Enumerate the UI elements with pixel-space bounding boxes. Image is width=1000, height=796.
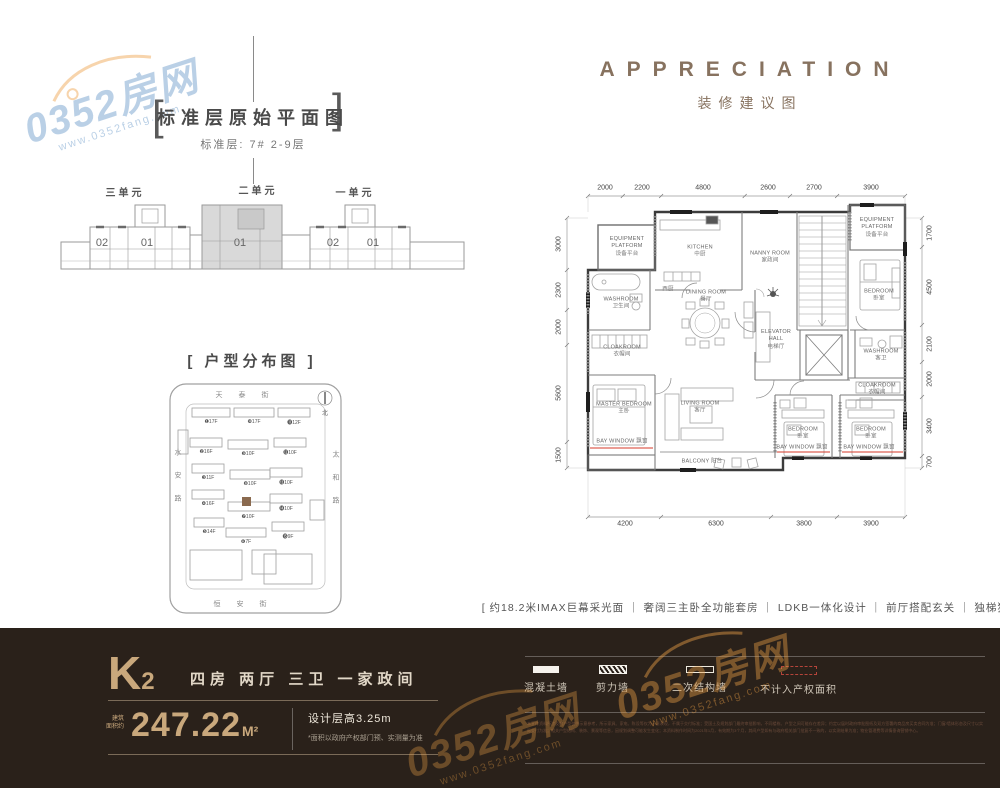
building-tag: ❽10F	[243, 481, 256, 487]
strip-room-02a: 02	[96, 237, 108, 249]
layout-text: 四房 两厅 三卫 一家政间	[190, 668, 418, 689]
disclaimer-text: 本宣传资料所涉及的户型仅供示意参考，所示家具、家电、陈设等仅为示意表现，不属于交…	[527, 720, 983, 734]
dim-top: 2000	[597, 185, 613, 192]
height-note: 设计层高3.25m	[308, 710, 392, 726]
building-tag: ⓭10F	[279, 479, 293, 486]
building-tag: ❶17F	[204, 419, 217, 425]
appreciation-title-en: APPRECIATION	[599, 58, 900, 82]
room-cloakroom-left: CLOAKROOM衣帽间	[603, 345, 641, 360]
unit-code: K2	[108, 650, 155, 696]
room-bedroom-3: BEDROOM卧室	[856, 427, 886, 442]
street-bottom: 恒安街	[214, 599, 283, 609]
building-tag: ⓫12F	[287, 419, 301, 426]
standard-floor-subtitle: 标准层: 7# 2-9层	[200, 136, 305, 152]
room-elevator-hall: ELEVATOR HALL电梯厅	[753, 329, 799, 351]
site-map	[168, 382, 343, 615]
dim-top: 2200	[634, 185, 650, 192]
concrete-wall-swatch	[533, 666, 559, 673]
dim-top: 2700	[806, 185, 822, 192]
dim-left: 1500	[556, 447, 563, 463]
building-tag: ❼10F	[241, 514, 254, 520]
room-master-bedroom: MASTER BEDROOM主卧	[596, 402, 652, 417]
building-tag: ❾10F	[241, 451, 254, 457]
dim-bottom: 3900	[863, 521, 879, 528]
room-bay-window-left: BAY WINDOW 飘窗	[596, 438, 647, 445]
car-swoosh-icon	[38, 34, 164, 109]
brochure-page: { "wm": { "brand": "0352房网", "site": "ww…	[0, 0, 1000, 788]
room-nanny: NANNY ROOM家政间	[750, 251, 790, 266]
room-washroom-left: WASHROOM卫生间	[603, 297, 638, 312]
dim-bottom: 6300	[708, 521, 724, 528]
room-cloakroom-right: CLOAKROOM衣帽间	[858, 383, 896, 398]
leader-line-top	[253, 36, 254, 102]
room-bay-window-r2: BAY WINDOW 飘窗	[843, 444, 894, 451]
unit-code-letter: K	[108, 647, 141, 699]
appreciation-title-cn: 装修建议图	[698, 93, 803, 113]
dim-left: 3000	[556, 236, 563, 252]
room-bedroom-tr: BEDROOM卧室	[864, 289, 894, 304]
strip-room-02b: 02	[327, 237, 339, 249]
unit-label-2: 二单元	[239, 182, 278, 197]
dim-right: 3400	[927, 418, 934, 434]
secondary-wall-swatch	[686, 666, 714, 673]
dim-top: 3900	[863, 185, 879, 192]
legend-concrete-wall: 混凝土墙	[524, 666, 568, 694]
shear-wall-swatch	[600, 666, 626, 673]
street-left: 水安路	[172, 449, 182, 518]
divider-vertical	[292, 708, 293, 750]
building-tag: ❿17F	[247, 419, 260, 425]
area-unit: M²	[242, 723, 258, 739]
building-tag: ⓯9F	[283, 533, 294, 540]
building-tag: ❸11F	[202, 475, 215, 481]
dim-right: 700	[927, 456, 934, 468]
dim-bottom: 3800	[796, 521, 812, 528]
divider	[108, 754, 438, 755]
leader-line-bottom	[253, 158, 254, 184]
building-tag: ❷16F	[199, 449, 212, 455]
dim-right: 2100	[927, 336, 934, 352]
dim-bottom: 4200	[617, 521, 633, 528]
watermark-brand: 0352房网	[400, 689, 586, 787]
room-balcony: BALCONY 阳台	[682, 458, 723, 465]
room-living: LIVING ROOM客厅	[681, 401, 720, 416]
street-right: 太和路	[330, 451, 340, 520]
legend-non-property-area: 不计入产权面积	[760, 666, 837, 696]
room-bay-window-r1: BAY WINDOW 飘窗	[776, 444, 827, 451]
building-tag: ⓮10F	[279, 505, 293, 512]
dim-right: 4500	[927, 279, 934, 295]
dim-top: 4800	[695, 185, 711, 192]
building-tag: ❺14F	[202, 529, 215, 535]
north-label: 北	[322, 408, 328, 417]
standard-floor-title: 标准层原始平面图	[157, 104, 349, 130]
dim-left: 2000	[556, 319, 563, 335]
selling-points-tagline: [ 约18.2米IMAX巨幕采光面 ｜ 奢阔三主卧全功能套房 ｜ LDKB一体化…	[482, 600, 1000, 615]
distribution-title: [ 户型分布图 ]	[187, 350, 316, 371]
non-property-area-swatch	[781, 666, 817, 675]
room-equipment-platform-tl: EQUIPMENT PLATFORM设备平台	[601, 236, 653, 258]
watermark-top-left: 0352房网 www.0352fang.com	[9, 24, 208, 162]
divider	[525, 712, 985, 713]
room-washroom-right: WASHROOM客卫	[863, 349, 898, 364]
strip-room-01c: 01	[367, 237, 379, 249]
room-kitchen: KITCHEN中厨	[687, 245, 713, 260]
room-bedroom-2: BEDROOM卧室	[788, 427, 818, 442]
room-west-kitchen: 西厨	[662, 286, 673, 293]
building-tag: ❻7F	[241, 539, 251, 545]
unit-code-number: 2	[141, 668, 154, 695]
highlighted-building-7	[242, 497, 251, 506]
divider	[525, 763, 985, 764]
strip-room-01a: 01	[141, 237, 153, 249]
divider	[525, 656, 985, 657]
strip-room-01b: 01	[234, 237, 246, 249]
area-value: 247.22	[131, 708, 241, 742]
area-prefix: 建筑 面积约	[106, 716, 124, 732]
divider	[108, 700, 438, 701]
legend-secondary-wall: 二次结构墙	[672, 666, 727, 694]
dim-right: 2000	[927, 371, 934, 387]
building-strip-plan	[60, 197, 465, 277]
footer: K2 四房 两厅 三卫 一家政间 建筑 面积约 247.22 M² 设计层高3.…	[0, 628, 1000, 788]
dim-top: 2600	[760, 185, 776, 192]
room-dining: DINING ROOM餐厅	[686, 290, 726, 305]
room-equipment-platform-tr: EQUIPMENT PLATFORM设备平台	[851, 217, 903, 239]
dim-left: 2300	[556, 282, 563, 298]
area-note: *面积以政府产权部门预、实测量为准	[308, 733, 423, 743]
dim-right: 1700	[927, 225, 934, 241]
building-tag: ❹16F	[201, 501, 214, 507]
legend-shear-wall: 剪力墙	[596, 666, 629, 694]
building-tag: ⓬10F	[283, 449, 297, 456]
street-top: 天泰街	[216, 390, 285, 400]
dim-left: 5600	[556, 385, 563, 401]
